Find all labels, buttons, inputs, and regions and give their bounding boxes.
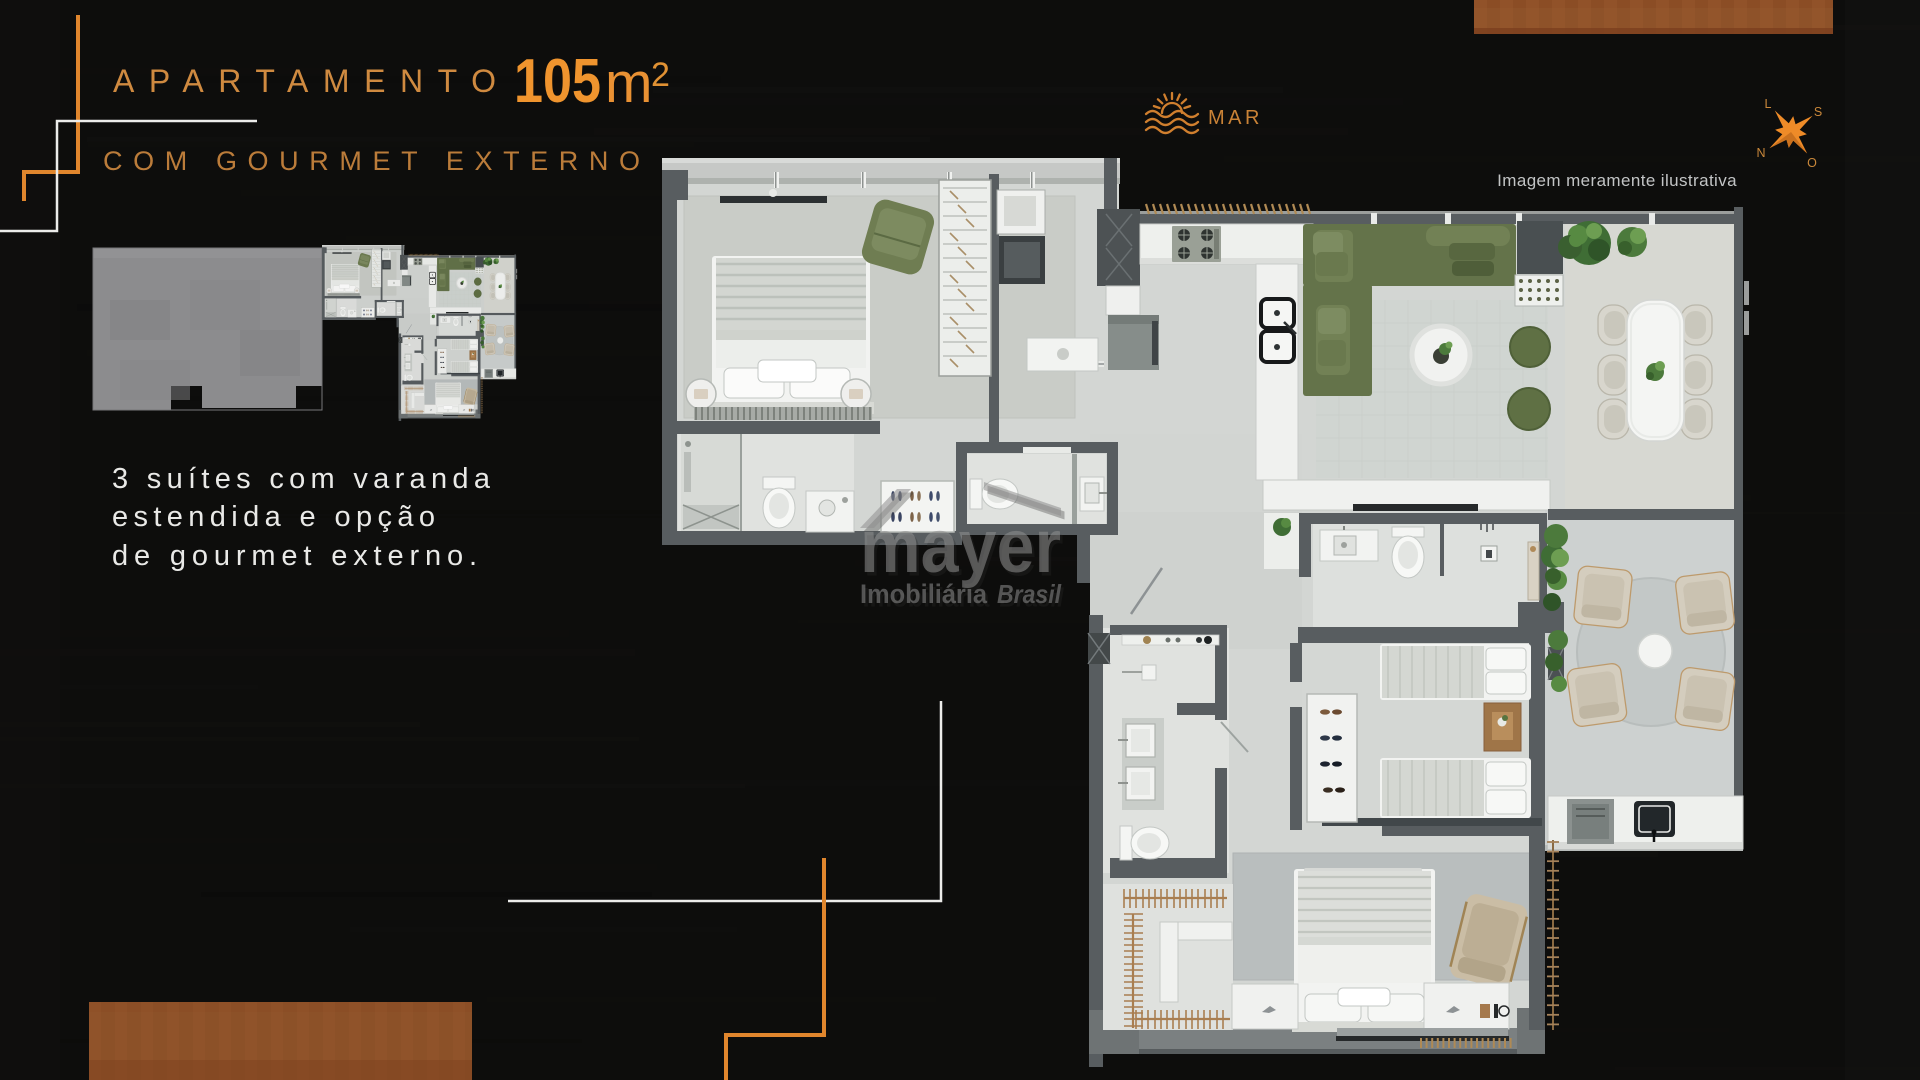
svg-text:O: O — [1807, 156, 1817, 170]
svg-text:estendida e opção: estendida e opção — [112, 501, 435, 533]
svg-text:N: N — [1756, 146, 1765, 160]
svg-text:Brasil: Brasil — [997, 579, 1062, 609]
svg-text:m: m — [605, 51, 652, 115]
svg-text:3 suítes com varanda: 3 suítes com varanda — [112, 463, 491, 495]
svg-text:Imobiliária: Imobiliária — [860, 579, 988, 609]
svg-text:COM GOURMET EXTERNO: COM GOURMET EXTERNO — [103, 146, 640, 176]
svg-text:L: L — [1765, 97, 1772, 111]
svg-text:MAR: MAR — [1208, 107, 1263, 129]
svg-text:105: 105 — [514, 47, 601, 116]
svg-text:mayer: mayer — [860, 504, 1061, 589]
svg-text:Imagem meramente ilustrativa: Imagem meramente ilustrativa — [1497, 171, 1737, 190]
svg-text:2: 2 — [651, 56, 670, 94]
svg-text:S: S — [1814, 105, 1822, 119]
